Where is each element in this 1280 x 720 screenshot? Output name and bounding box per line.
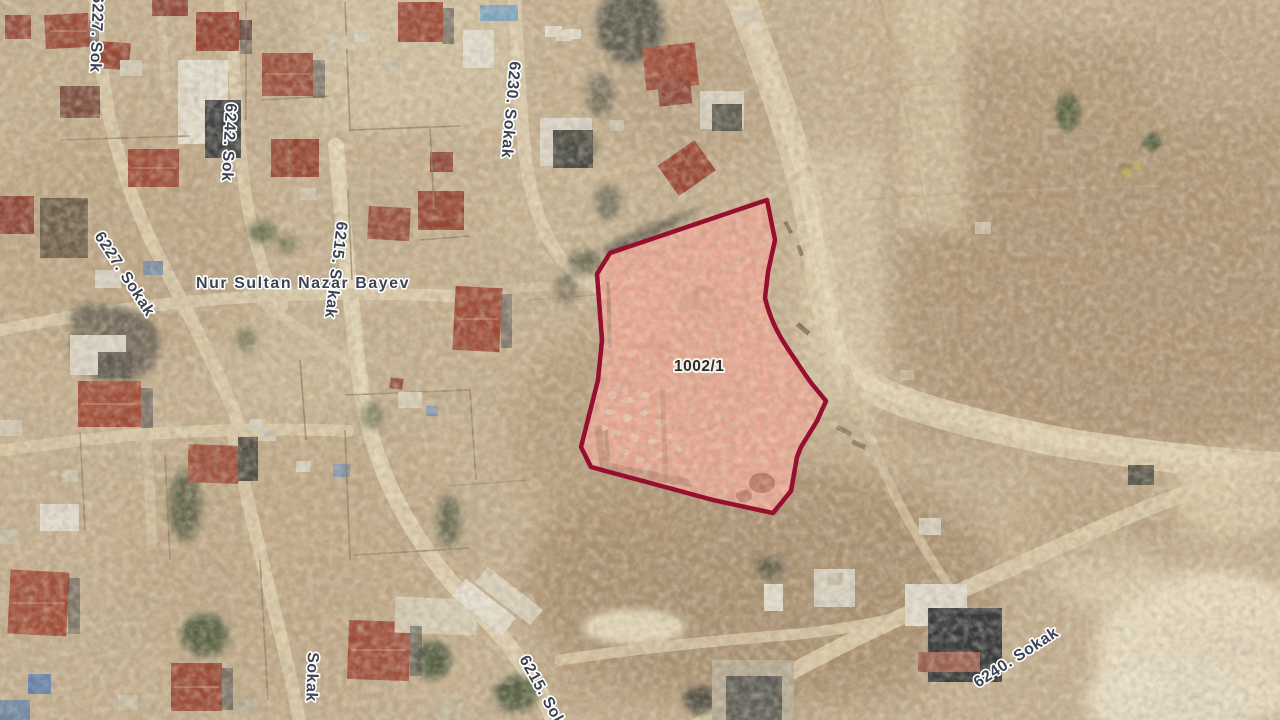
svg-text:Sokak: Sokak	[302, 652, 321, 702]
svg-text:1002/1: 1002/1	[674, 358, 724, 375]
svg-text:6227. Sok: 6227. Sok	[86, 0, 106, 73]
svg-text:Nur Sultan Nazar Bayev: Nur Sultan Nazar Bayev	[196, 275, 409, 292]
